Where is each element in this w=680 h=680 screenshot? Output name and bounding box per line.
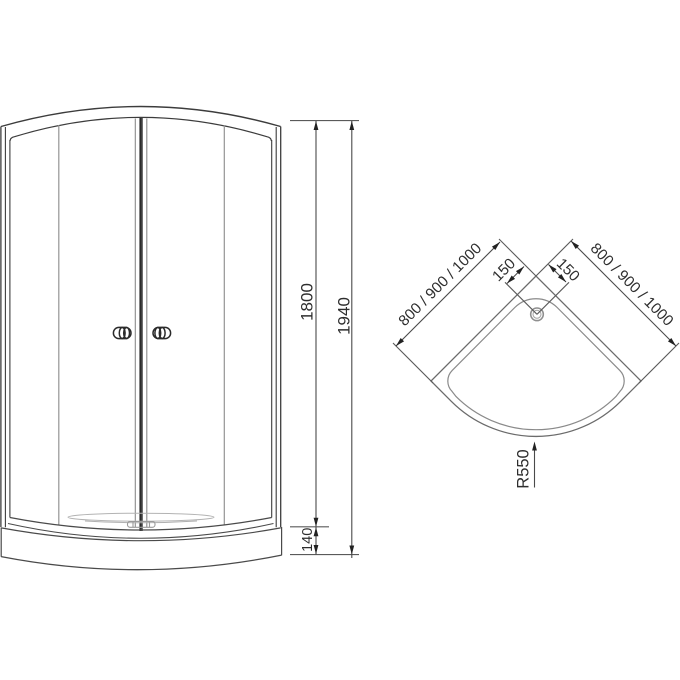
svg-text:1940: 1940 (335, 297, 354, 335)
svg-text:140: 140 (300, 528, 316, 552)
svg-text:R550: R550 (514, 449, 532, 488)
svg-text:1800: 1800 (297, 283, 316, 321)
